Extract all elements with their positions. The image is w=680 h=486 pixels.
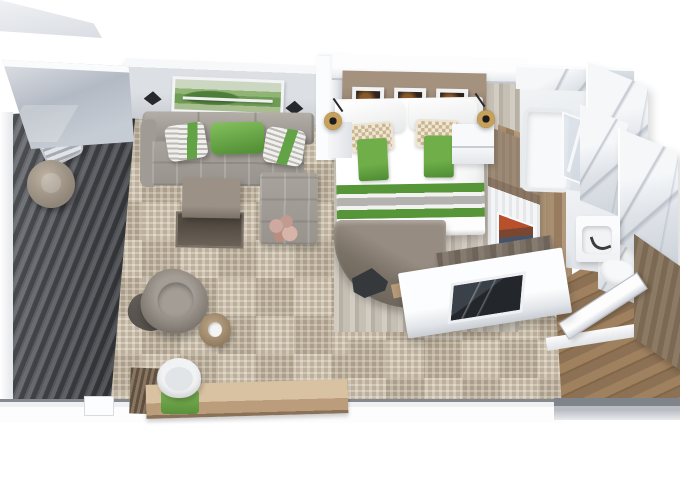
double-bed (335, 97, 485, 238)
landscape-wall-art (171, 76, 284, 116)
suite-floorplan-render (0, 0, 680, 486)
brass-pendant-lamp-left (324, 112, 342, 130)
bed-pillow-green (357, 138, 389, 182)
exterior-wall-step (84, 396, 114, 416)
green-striped-runner (336, 183, 485, 220)
nightstand-right (452, 124, 494, 164)
entry-bottom-wall (554, 398, 680, 420)
balcony-round-side-table (27, 160, 75, 208)
sink-vanity (576, 216, 620, 262)
balcony-side-wall (0, 112, 13, 412)
drum-side-table (199, 313, 231, 347)
desk-chair-shell (157, 358, 201, 398)
striped-pillow-right (262, 126, 307, 168)
brass-pendant-lamp-right (477, 110, 495, 128)
tv-screen (447, 271, 526, 324)
green-lumbar-pillow (210, 121, 265, 154)
striped-pillow-left (164, 121, 209, 163)
nesting-coffee-table (175, 177, 246, 244)
coffee-table-top (182, 177, 241, 218)
desk-chair (157, 358, 203, 414)
flower-decor (266, 214, 300, 244)
wall-sconce-left-icon (143, 91, 162, 106)
bed-pillow-green (424, 135, 454, 177)
